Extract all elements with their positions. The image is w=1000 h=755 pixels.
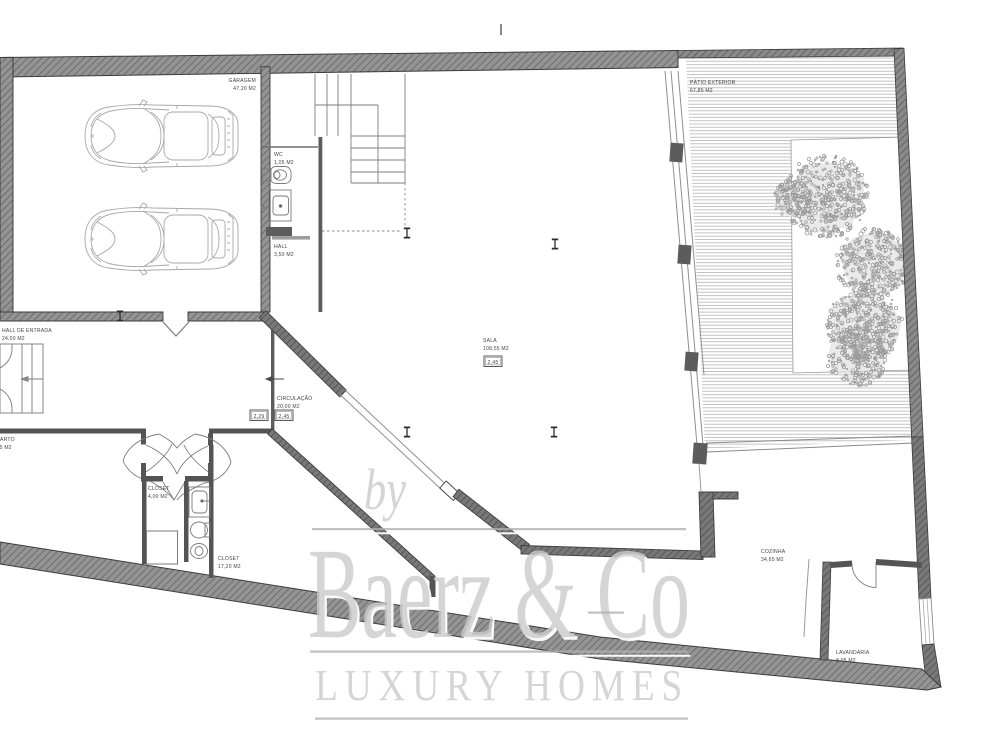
svg-text:HALL: HALL: [274, 244, 288, 250]
svg-text:17,20 M2: 17,20 M2: [218, 564, 241, 570]
svg-text:CLOSET: CLOSET: [148, 486, 170, 492]
svg-text:by: by: [364, 457, 406, 522]
svg-text:1,05 M2: 1,05 M2: [274, 160, 294, 166]
svg-text:3,50 M2: 3,50 M2: [274, 252, 294, 258]
svg-text:PÁTIO EXTERIOR: PÁTIO EXTERIOR: [690, 79, 736, 86]
svg-text:4,00 M2: 4,00 M2: [148, 494, 168, 500]
svg-text:Baerz & Co: Baerz & Co: [308, 522, 690, 666]
svg-text:2,45: 2,45: [279, 414, 290, 420]
svg-text:WC: WC: [274, 152, 283, 158]
svg-text:108,55 M2: 108,55 M2: [483, 346, 509, 352]
svg-text:8,05 M2: 8,05 M2: [836, 658, 856, 664]
svg-text:HALL DE ENTRADA: HALL DE ENTRADA: [2, 328, 52, 334]
svg-text:67,85 M2: 67,85 M2: [690, 88, 713, 94]
svg-text:24,00 M2: 24,00 M2: [2, 336, 25, 342]
svg-text:CLOSET: CLOSET: [218, 556, 240, 562]
svg-text:47,20 M2: 47,20 M2: [233, 86, 256, 92]
svg-text:SALA: SALA: [483, 338, 497, 344]
svg-text:9,25 M2: 9,25 M2: [0, 445, 12, 451]
svg-text:34,65 M2: 34,65 M2: [761, 557, 784, 563]
svg-text:20,00 M2: 20,00 M2: [277, 404, 300, 410]
svg-text:LAVANDARIA: LAVANDARIA: [836, 650, 870, 656]
svg-text:QUARTO: QUARTO: [0, 437, 15, 443]
svg-text:GARAGEM: GARAGEM: [229, 78, 256, 84]
svg-text:COZINHA: COZINHA: [761, 549, 786, 555]
svg-text:LUXURY HOMES: LUXURY HOMES: [315, 661, 689, 710]
svg-text:2,29: 2,29: [254, 414, 265, 420]
svg-text:2,45: 2,45: [488, 360, 499, 366]
svg-text:CIRCULAÇÃO: CIRCULAÇÃO: [277, 395, 312, 402]
